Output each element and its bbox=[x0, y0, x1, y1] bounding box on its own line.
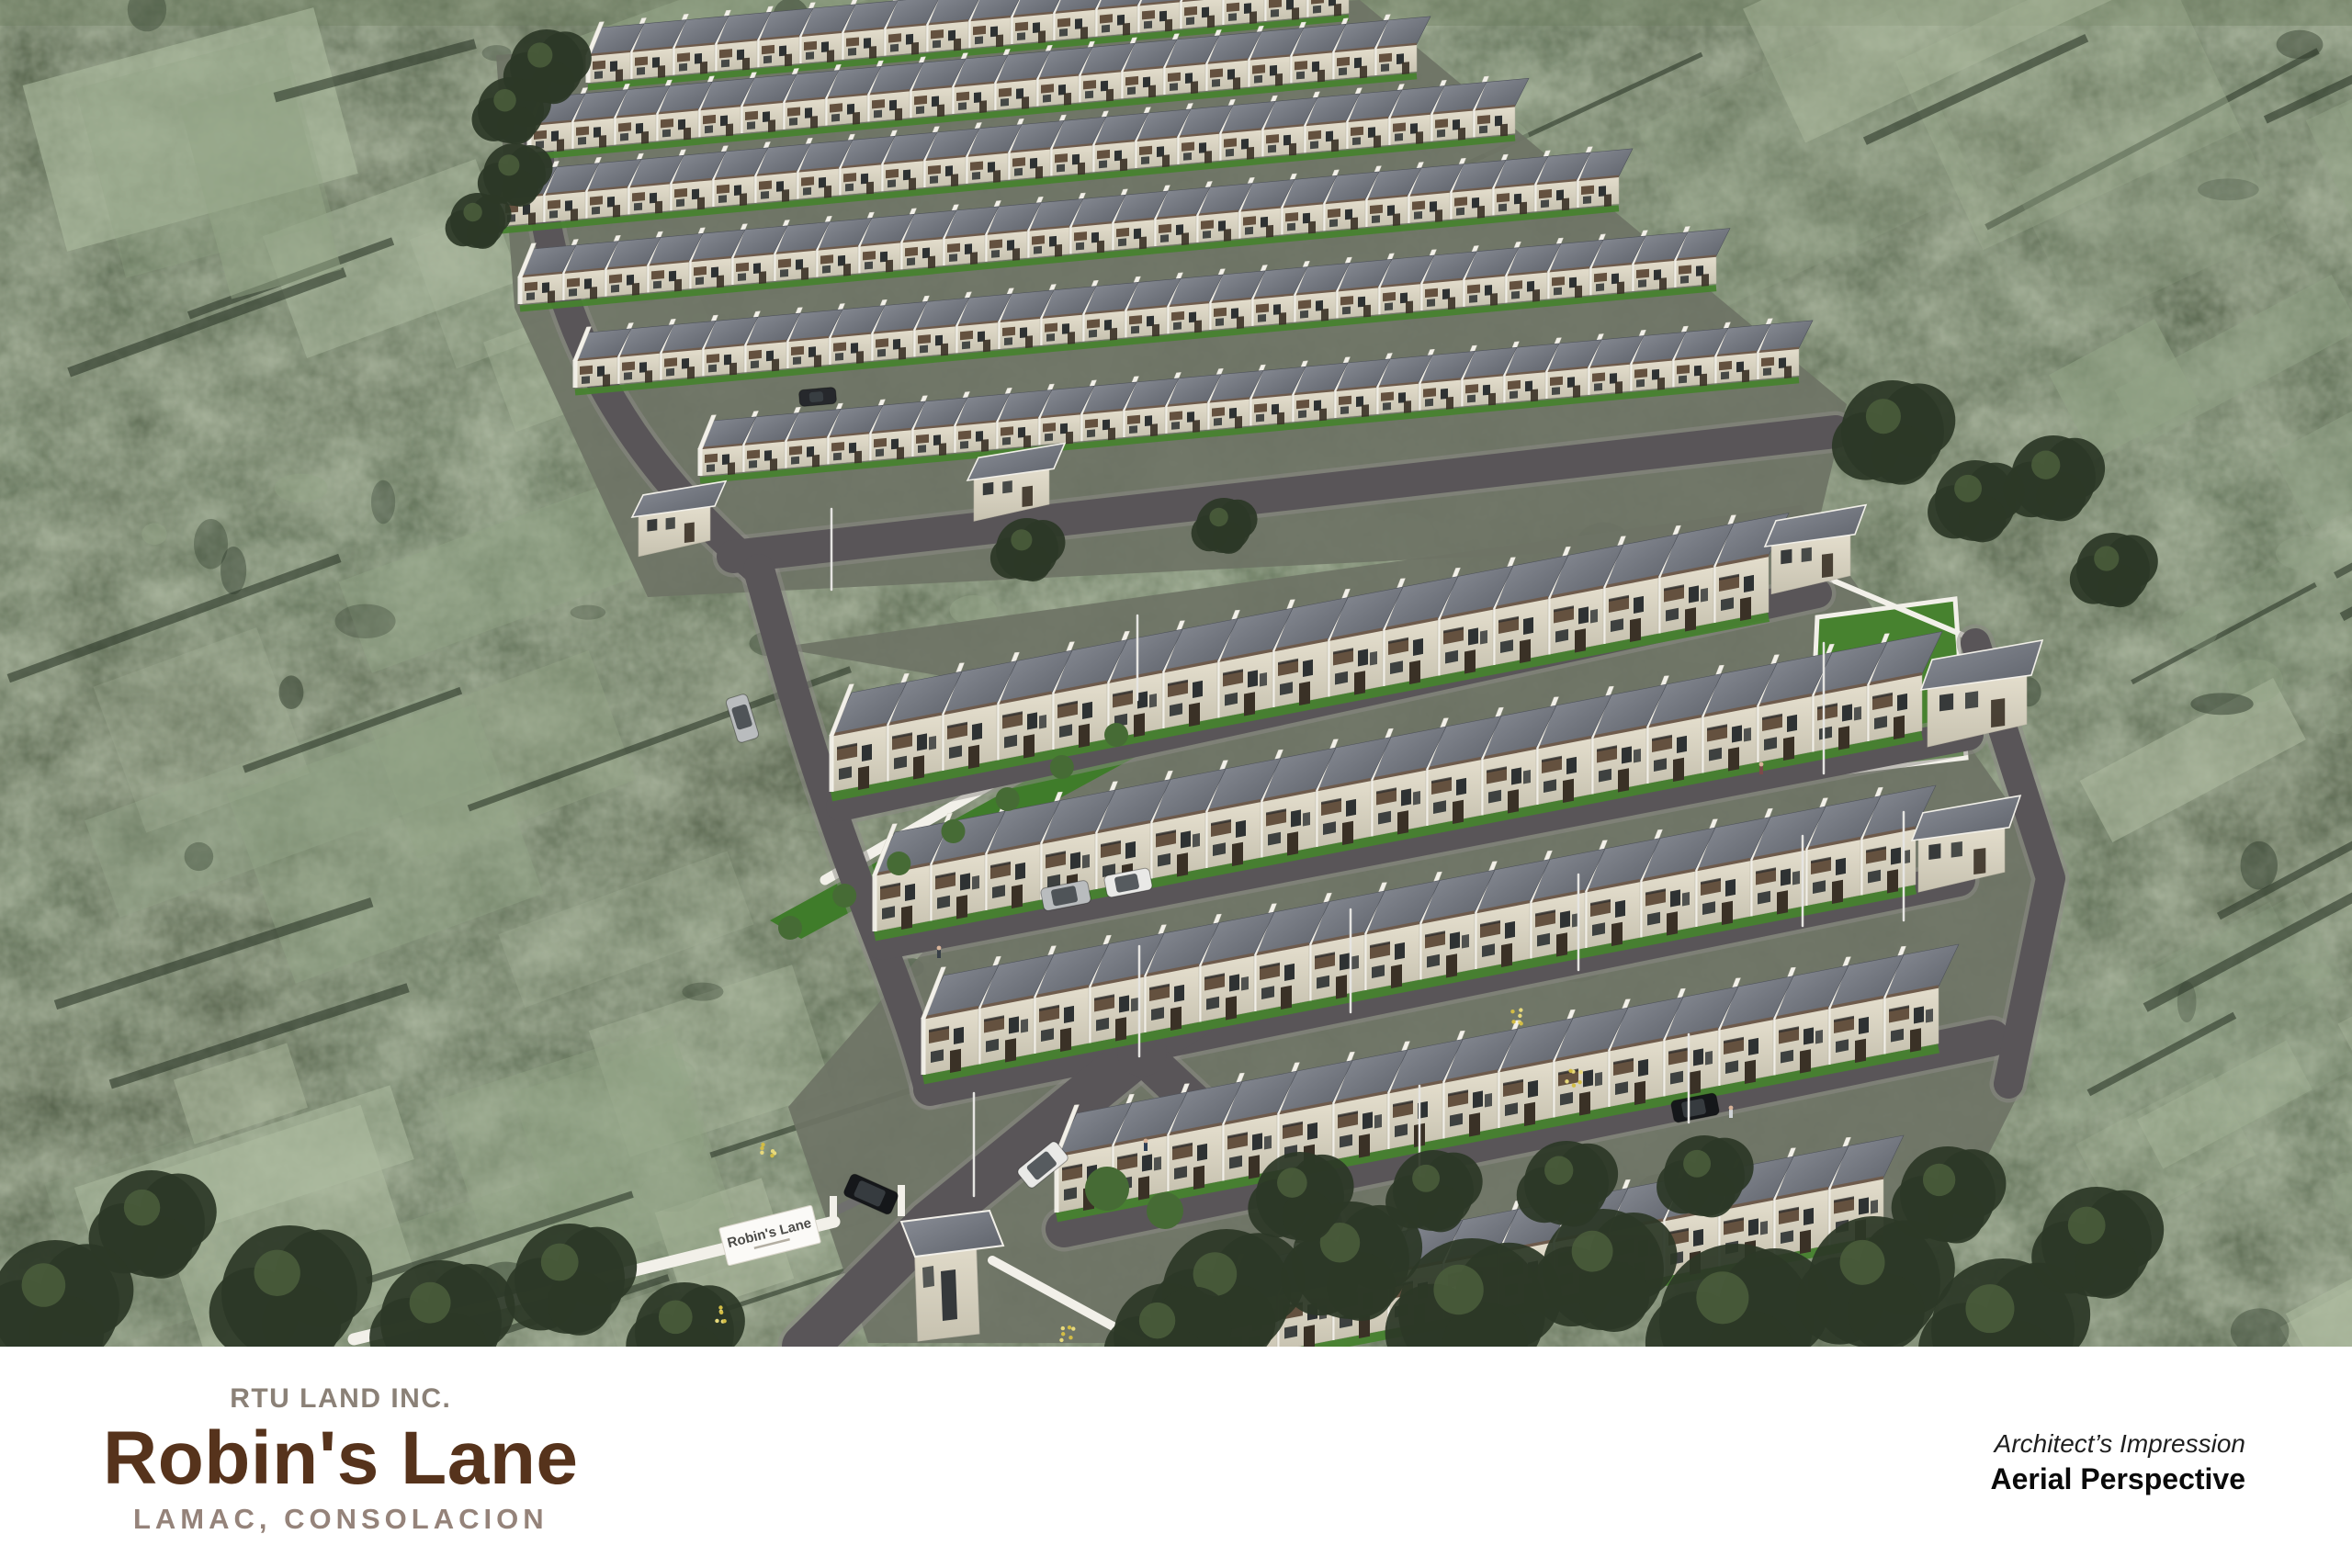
note-impression: Architect’s Impression bbox=[1991, 1427, 2246, 1461]
project-title: Robin's Lane bbox=[103, 1416, 579, 1501]
aerial-perspective-render: Robin's Lane bbox=[0, 0, 2352, 1347]
brand-block: RTU LAND INC. Robin's Lane LAMAC, CONSOL… bbox=[103, 1382, 579, 1538]
presentation-board: Robin's Lane RTU LAND INC. Robin's Lane … bbox=[0, 0, 2352, 1568]
note-perspective: Aerial Perspective bbox=[1991, 1461, 2246, 1497]
company-name: RTU LAND INC. bbox=[103, 1382, 579, 1416]
note-block: Architect’s Impression Aerial Perspectiv… bbox=[1991, 1427, 2246, 1497]
project-location: LAMAC, CONSOLACION bbox=[103, 1501, 579, 1538]
caption-band: RTU LAND INC. Robin's Lane LAMAC, CONSOL… bbox=[0, 1347, 2352, 1568]
